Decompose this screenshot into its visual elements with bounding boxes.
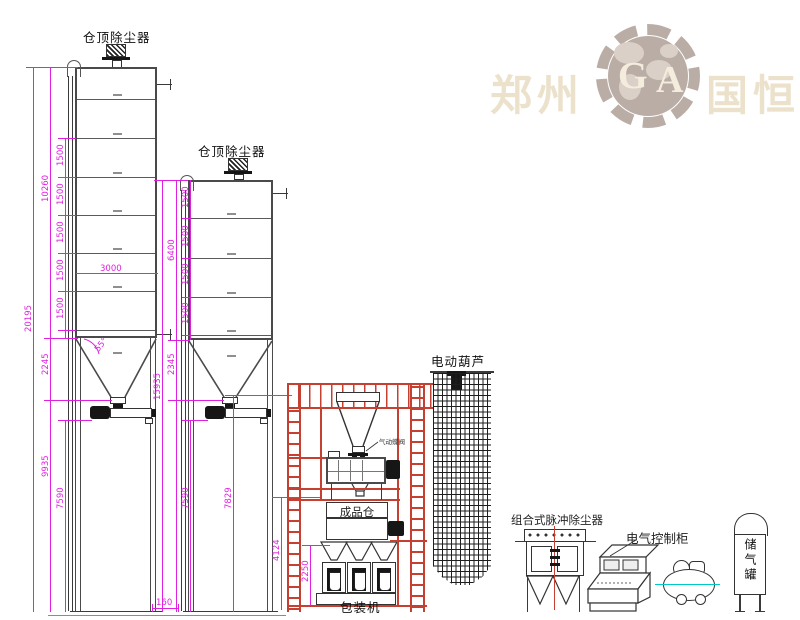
console-screen <box>623 560 638 570</box>
console-base <box>588 589 638 603</box>
silo-left-top-dust-collector <box>106 44 126 57</box>
seam-annotation <box>113 210 122 212</box>
dim-extension <box>182 258 190 259</box>
dust-filter-hoppers <box>526 576 580 604</box>
filter-leg <box>579 576 580 612</box>
valve-flange <box>348 453 368 456</box>
compressor-tank <box>663 569 715 601</box>
seam-annotation <box>113 248 122 250</box>
silo-seam <box>77 177 155 178</box>
mixer-detail <box>328 471 384 472</box>
console-plinth <box>590 603 636 611</box>
frame-beam <box>390 540 427 542</box>
packer-funnel <box>371 542 397 560</box>
packer-funnel <box>346 542 372 560</box>
control-cabinet-label: 电气控制柜 <box>626 528 689 547</box>
compressor-centerline <box>655 584 720 585</box>
silo-seam <box>77 99 155 100</box>
seam-annotation <box>113 352 122 354</box>
silo-mid-shell <box>188 180 273 340</box>
bag <box>329 572 341 591</box>
dim-extension <box>182 335 190 336</box>
dim-label-ring: 1500 <box>56 297 66 319</box>
tank-foot <box>755 611 765 612</box>
silo-seam <box>190 218 271 219</box>
dim-extension <box>182 420 208 421</box>
seam-annotation <box>227 253 236 255</box>
dim-extension <box>302 545 330 546</box>
silo-seam <box>190 335 271 336</box>
seam-annotation <box>113 172 122 174</box>
compressor-wheel <box>695 594 706 605</box>
silo-seam <box>77 253 155 254</box>
console-screen <box>604 560 619 570</box>
valve-leader-line <box>366 442 378 451</box>
conveyor-end-cap <box>267 409 271 417</box>
silo-seam <box>190 258 271 259</box>
dim-label-4124: 4124 <box>272 539 282 561</box>
bag <box>354 572 366 591</box>
bag <box>379 572 391 591</box>
frame-beam <box>287 488 400 490</box>
dim-label-legs-left: 9935 <box>41 455 51 477</box>
dim-label-ring: 1500 <box>56 183 66 205</box>
mixer-motor <box>386 460 400 479</box>
dim-label-2250: 2250 <box>301 560 311 582</box>
screw-conveyor-motor <box>205 406 225 419</box>
screw-motor <box>388 521 404 536</box>
dim-extension <box>26 67 78 68</box>
silo-mid-leg <box>188 340 194 611</box>
dim-label-ring: 1500 <box>181 225 191 247</box>
dim-label-legs-left2: 7590 <box>56 487 66 509</box>
level-tick <box>170 329 171 340</box>
dim-extension <box>154 180 188 181</box>
conveyor-chute <box>260 418 268 424</box>
seam-annotation <box>227 330 236 332</box>
seam-annotation <box>113 133 122 135</box>
weigh-hopper-outlet <box>352 446 365 453</box>
dim-extension <box>58 253 76 254</box>
dim-line-160 <box>152 608 178 609</box>
dim-label-shell-left: 10260 <box>41 175 51 202</box>
dim-extension <box>225 395 292 396</box>
compressor-wheel <box>676 594 687 605</box>
cad-drawing: 郑州 G A 国恒 <box>0 0 800 620</box>
dim-line <box>65 420 66 612</box>
mixer-discharge <box>352 484 368 496</box>
mixer-leg <box>381 484 382 500</box>
silo-seam <box>77 138 155 139</box>
valve-label: 气动蝶阀 <box>379 436 405 446</box>
filter-flange-mark <box>550 556 560 559</box>
weigh-hopper-rim <box>336 392 380 402</box>
feed-pipe-bend <box>67 60 81 77</box>
frame-beam <box>287 499 400 501</box>
ladder-rungs[interactable] <box>411 386 424 612</box>
silo-seam <box>77 291 155 292</box>
level-tick <box>286 188 287 199</box>
mixer-leg <box>331 484 332 500</box>
dim-label-shell-mid: 6400 <box>167 239 177 261</box>
filter-centerline <box>554 526 555 610</box>
filter-flange-mark <box>550 563 560 566</box>
filter-flange-mark <box>550 549 560 552</box>
dim-label-ring: 1500 <box>181 263 191 285</box>
dim-label-total-mid: 15935 <box>153 373 163 400</box>
ground-line <box>183 611 278 612</box>
dim-extension <box>182 297 190 298</box>
ground-line <box>70 611 162 612</box>
dim-extension <box>58 420 92 421</box>
feed-pipe <box>68 76 69 611</box>
dust-filter-label: 组合式脉冲除尘器 <box>511 512 603 528</box>
silo-seam <box>190 297 271 298</box>
dust-filter-door <box>557 546 578 572</box>
silo-seam <box>77 330 155 331</box>
dim-extension <box>44 400 112 401</box>
tank-leg <box>739 595 741 612</box>
pulse-valve-row <box>528 533 582 538</box>
conveyor-chute <box>145 418 153 424</box>
level-tick <box>170 79 171 90</box>
lattice-column-rungs <box>288 410 300 610</box>
dim-label-ring: 1500 <box>181 302 191 324</box>
dim-label-7829: 7829 <box>224 487 234 509</box>
screw-conveyor-tube <box>110 408 152 418</box>
dim-line <box>190 420 191 612</box>
dim-label-160: 160 <box>156 598 172 608</box>
silo-mid-outlet <box>222 397 238 404</box>
seam-annotation <box>227 292 236 294</box>
dim-extension <box>58 177 76 178</box>
air-tank-dome <box>734 513 768 536</box>
silo-left-cone <box>76 339 156 397</box>
dim-label-ring: 1500 <box>56 144 66 166</box>
conveyor-end-cap <box>152 409 156 417</box>
silo-left-shell <box>75 67 157 338</box>
silo-left-leg <box>75 338 81 611</box>
dim-label-total-left: 20195 <box>24 305 34 332</box>
silo-mid-leg <box>267 340 273 611</box>
feed-pipe <box>72 76 73 611</box>
dim-label-cone-mid: 2345 <box>167 353 177 375</box>
dim-label-cone-left: 2245 <box>41 353 51 375</box>
dim-label-ring: 1500 <box>56 259 66 281</box>
air-tank-label: 储气罐 <box>742 538 759 583</box>
dim-label-3000: 3000 <box>100 264 122 274</box>
silo-seam <box>77 215 155 216</box>
dim-label-ring: 1500 <box>181 186 191 208</box>
ground-line-cyan <box>48 615 286 616</box>
dim-label-ring: 1500 <box>56 221 66 243</box>
frame-beam <box>287 457 327 459</box>
dim-extension <box>152 604 153 612</box>
dim-extension <box>58 330 76 331</box>
dim-extension <box>58 291 76 292</box>
seam-annotation <box>227 213 236 215</box>
seam-annotation <box>113 94 122 96</box>
silo-mid-top-dust-collector <box>228 158 248 171</box>
seam-annotation <box>113 286 122 288</box>
mesh-tower <box>433 373 491 585</box>
screw-conveyor-motor <box>90 406 110 419</box>
packing-machine-label: 包装机 <box>340 597 381 616</box>
dim-extension <box>182 218 190 219</box>
dim-extension <box>44 338 78 339</box>
silo-mid-cone <box>189 341 272 397</box>
screw-conveyor-case <box>326 518 388 540</box>
tank-leg <box>759 595 761 612</box>
dim-extension <box>58 138 76 139</box>
screw-conveyor-tube <box>225 408 267 418</box>
filter-leg <box>527 576 528 612</box>
dim-label-legs-mid: 7590 <box>181 487 191 509</box>
dim-extension <box>178 604 179 612</box>
silo-left-outlet <box>110 397 126 404</box>
dim-line <box>33 67 34 612</box>
dust-filter-door <box>531 546 552 572</box>
tank-foot <box>735 611 745 612</box>
dim-extension <box>168 400 224 401</box>
electric-hoist-label: 电动葫芦 <box>431 351 485 370</box>
dim-extension <box>168 340 190 341</box>
dim-extension <box>58 215 76 216</box>
dim-line <box>50 67 51 612</box>
frame-column <box>320 409 322 500</box>
seam-annotation <box>227 355 236 357</box>
